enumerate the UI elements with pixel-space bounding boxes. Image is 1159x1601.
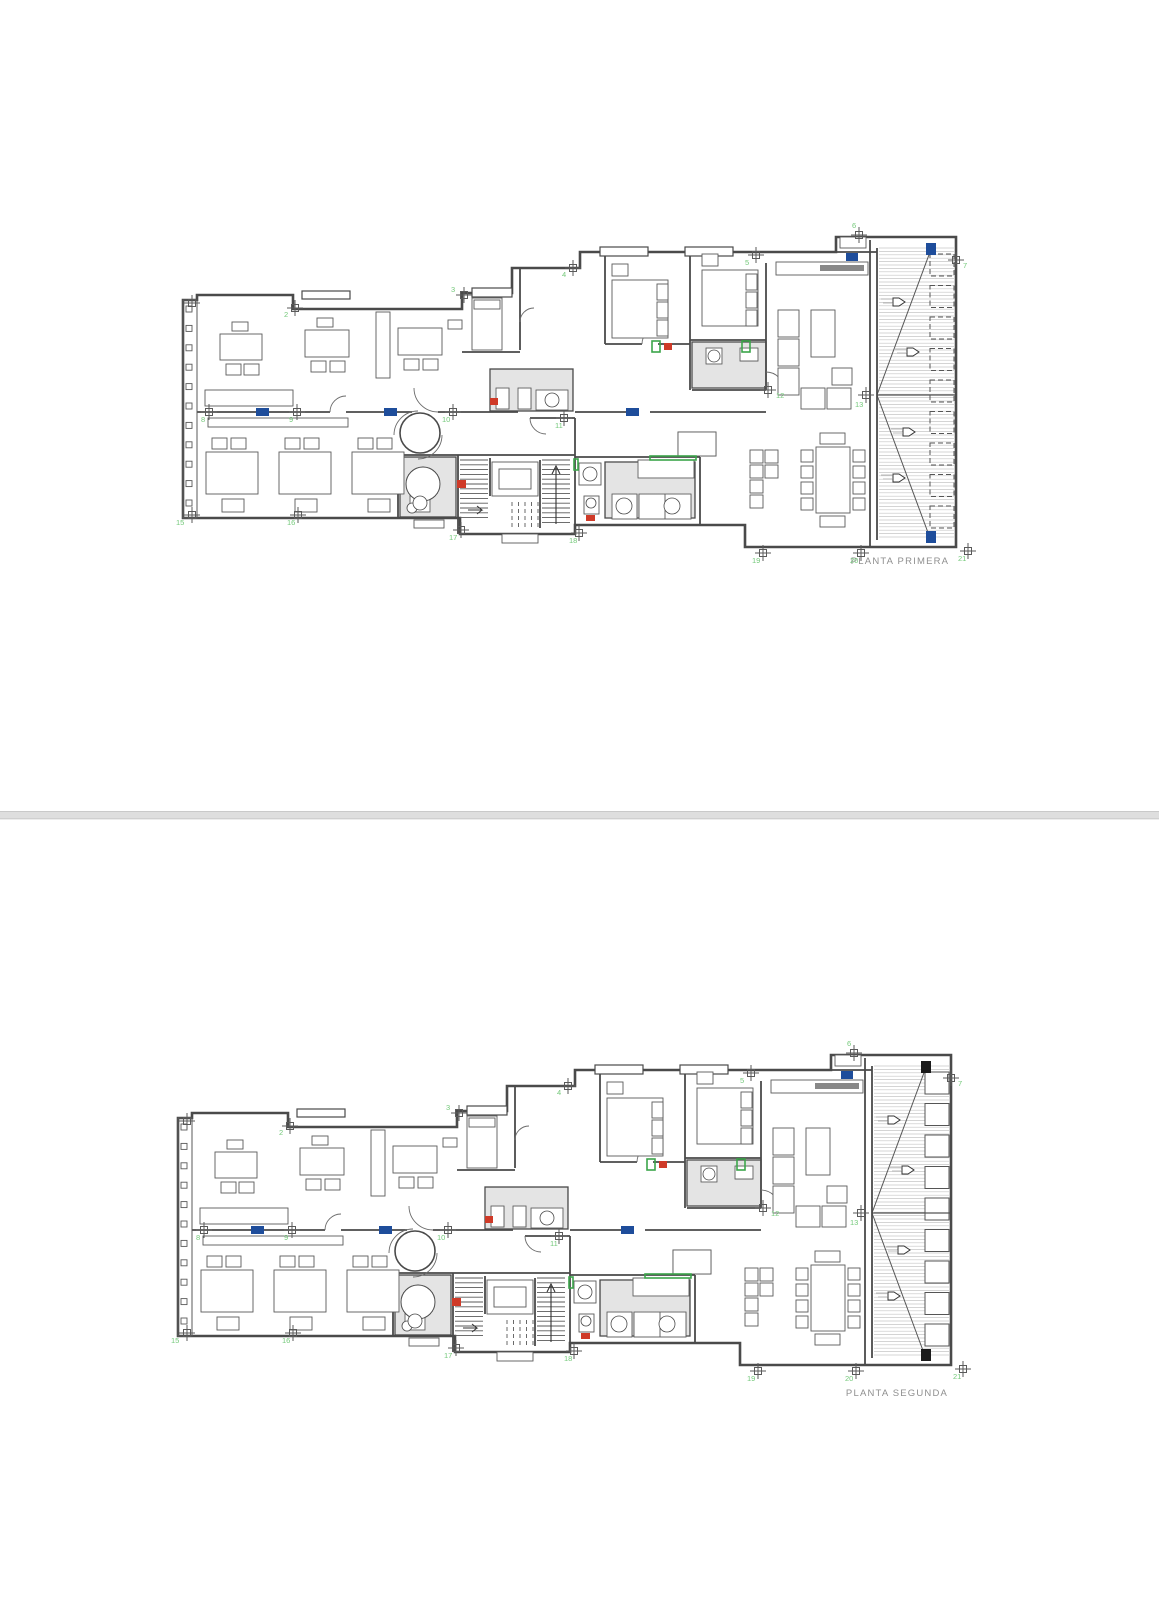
slope-arrow-icon xyxy=(890,1166,914,1174)
grid-marker-icon xyxy=(282,1118,298,1134)
slope-arrow-icon xyxy=(876,1116,900,1124)
grid-marker-label: 11 xyxy=(550,1239,558,1248)
grid-marker-label: 13 xyxy=(850,1218,858,1227)
floor-plan-segunda-drawing: PLANTA SEGUNDA 2345678910111213151617181… xyxy=(160,1025,980,1415)
grid-marker-label: 7 xyxy=(958,1079,962,1088)
page-divider xyxy=(0,812,1159,819)
grid-marker-icon xyxy=(456,287,472,303)
grid-marker-label: 4 xyxy=(562,270,566,279)
grid-marker-label: 9 xyxy=(289,415,293,424)
grid-marker-label: 19 xyxy=(747,1374,755,1383)
grid-marker-label: 17 xyxy=(449,533,457,542)
grid-marker-label: 16 xyxy=(282,1336,290,1345)
plan-linework xyxy=(183,237,956,547)
grid-marker-label: 12 xyxy=(776,391,784,400)
grid-marker-label: 16 xyxy=(287,518,295,527)
grid-marker-label: 3 xyxy=(451,285,455,294)
grid-marker-icon xyxy=(184,507,200,523)
grid-marker-icon xyxy=(565,260,581,276)
slope-arrow-icon xyxy=(881,298,905,306)
terrace-decking xyxy=(877,243,956,543)
grid-marker-label: 2 xyxy=(284,310,288,319)
grid-marker-label: 10 xyxy=(437,1233,445,1242)
plan-title-segunda: PLANTA SEGUNDA xyxy=(846,1388,948,1399)
grid-marker-label: 20 xyxy=(845,1374,853,1383)
grid-marker-label: 12 xyxy=(771,1209,779,1218)
plans-sheet-background: { "document": { "type": "architectural-f… xyxy=(0,0,1159,1600)
grid-marker-label: 17 xyxy=(444,1351,452,1360)
slope-arrow-icon xyxy=(895,348,919,356)
grid-marker-label: 21 xyxy=(953,1372,961,1381)
grid-marker-label: 6 xyxy=(847,1039,851,1048)
grid-marker-label: 13 xyxy=(855,400,863,409)
grid-marker-label: 5 xyxy=(740,1076,744,1085)
grid-marker-label: 2 xyxy=(279,1128,283,1137)
grid-marker-label: 11 xyxy=(555,421,563,430)
grid-marker-label: 3 xyxy=(446,1103,450,1112)
plan-title-primera: PLANTA PRIMERA xyxy=(851,556,949,567)
grid-marker-label: 8 xyxy=(196,1233,200,1242)
grid-marker-icon xyxy=(748,247,764,263)
grid-marker-label: 4 xyxy=(557,1088,561,1097)
grid-marker-icon xyxy=(451,1105,467,1121)
grid-marker-label: 15 xyxy=(171,1336,179,1345)
grid-marker-label: 10 xyxy=(442,415,450,424)
grid-marker-label: 5 xyxy=(745,258,749,267)
grid-marker-icon xyxy=(287,300,303,316)
slope-arrow-icon xyxy=(881,474,905,482)
grid-marker-label: 7 xyxy=(963,261,967,270)
grid-marker-icon xyxy=(179,1325,195,1341)
grid-marker-label: 19 xyxy=(752,556,760,565)
plan-linework xyxy=(178,1055,951,1365)
grid-marker-label: 15 xyxy=(176,518,184,527)
grid-marker-label: 8 xyxy=(201,415,205,424)
grid-marker-label: 18 xyxy=(569,536,577,545)
grid-marker-label: 21 xyxy=(958,554,966,563)
grid-marker-label: 18 xyxy=(564,1354,572,1363)
grid-marker-icon xyxy=(560,1078,576,1094)
slope-arrow-icon xyxy=(876,1292,900,1300)
grid-marker-icon xyxy=(743,1065,759,1081)
grid-marker-label: 6 xyxy=(852,221,856,230)
grid-marker-label: 9 xyxy=(284,1233,288,1242)
floor-plan-primera-drawing: PLANTA PRIMERA 2345678910111213151617181… xyxy=(165,207,985,597)
terrace-decking xyxy=(872,1061,951,1361)
grid-marker-label: 20 xyxy=(850,556,858,565)
